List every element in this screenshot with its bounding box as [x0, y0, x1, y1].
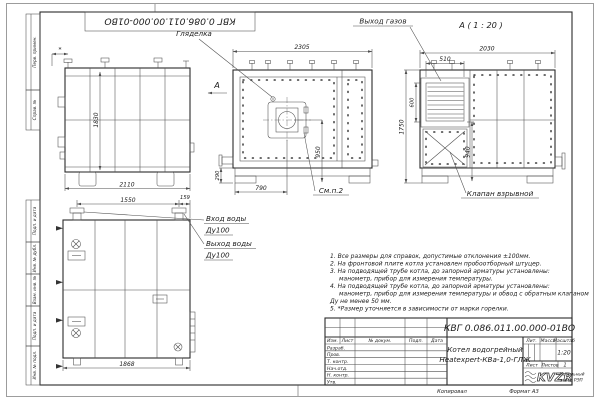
dim-front-width: 2305	[294, 44, 309, 51]
doc-number-main: КВГ 0.086.011.00.000-01ВО	[444, 323, 575, 334]
product-name-1: Котел водогрейный	[447, 345, 523, 354]
margin-stamps: Перв. примен. Справ. № Подп. и дата Инв.…	[26, 14, 40, 385]
stamp-perv-primen: Перв. примен.	[32, 36, 37, 67]
dim-star: *	[59, 47, 62, 54]
front-stubs	[219, 155, 378, 166]
doc-number-top: КВГ 0.086.011.00.000-01ВО	[104, 15, 235, 26]
valve-label: Клапан взрывной	[467, 189, 534, 198]
dim-burner-y: 950	[315, 146, 322, 158]
gas-outlet-label: Выход газов	[359, 17, 406, 26]
sheet-label: Лист	[525, 362, 538, 368]
note-line: 5. *Размер уточняется в зависимости от м…	[330, 306, 509, 313]
section-panel-bolts	[474, 75, 551, 163]
lit-label: Лит.	[525, 338, 537, 344]
kvzr-logo: KVZR Котельный завод РЭП	[525, 371, 585, 384]
title-block: Изм. Лист № докум. Подп. Дата Разраб. Пр…	[325, 318, 585, 386]
sheets-label: Листов	[540, 362, 558, 368]
col-list: Лист	[341, 338, 354, 344]
doc-number-top-box: КВГ 0.086.011.00.000-01ВО	[85, 12, 255, 31]
col-doc: № докум.	[368, 338, 392, 344]
stamp-inv-podl: Инв. № подл.	[32, 351, 37, 380]
logo-subtext-2: завод РЭП	[560, 378, 583, 383]
view-section: А ( 1 : 20 )	[353, 17, 565, 199]
sheets-value: 1	[563, 363, 566, 369]
notes-block: 1. Все размеры для справок, допустимые о…	[329, 253, 589, 313]
dim-bottom-w2: 159	[180, 195, 190, 201]
drawing-sheet: Перв. примен. Справ. № Подп. и дата Инв.…	[0, 0, 600, 400]
copied-label: Копировал	[437, 389, 467, 395]
dim-bottom-w1: 1550	[120, 197, 135, 204]
logo-coil-icon	[525, 372, 536, 383]
product-name-2: Heatexpert-КВа-1,0-ГЛЖ	[439, 355, 531, 364]
note-line: Ду не менее 50 мм.	[329, 298, 392, 305]
see-note-label: См.п.2	[319, 186, 344, 195]
dim-valve-height: 940	[465, 146, 472, 158]
note-line: 2. На фронтовой плите котла установлен п…	[330, 261, 542, 268]
sight-glass-leader	[199, 39, 272, 97]
gas-outlet-leader	[410, 27, 441, 81]
water-in-dn: Ду100	[205, 226, 230, 235]
dim-bottom-total: 1868	[119, 361, 134, 368]
section-arrow-label: А	[213, 80, 220, 90]
row-prov: Пров.	[327, 352, 340, 358]
dim-side-height: 1830	[93, 112, 100, 127]
water-out-dn: Ду100	[205, 251, 230, 260]
row-nachotd: Нач.отд.	[327, 366, 348, 372]
section-view-title: А ( 1 : 20 )	[458, 20, 502, 30]
col-data: Дата	[430, 338, 443, 344]
view-bottom: 1550 159 1868 Вход воды Ду100 Выход воды…	[56, 195, 256, 371]
water-in-label: Вход воды	[206, 214, 246, 223]
note-line: 3. На подводящей трубе котла, до запорно…	[330, 268, 550, 275]
dim-section-height: 1750	[399, 119, 406, 134]
scale-label: Масштаб	[553, 338, 575, 344]
dim-front-base: 290	[215, 170, 221, 181]
sight-glass-dot	[272, 98, 273, 99]
drawing-canvas: Перв. примен. Справ. № Подп. и дата Инв.…	[0, 0, 600, 400]
water-out-leader	[184, 214, 204, 244]
stamp-sprav: Справ. №	[32, 99, 37, 120]
view-front: 2305 А 790 950 290 Гляделка См.п.2	[176, 29, 378, 195]
front-side-panel-bolts	[348, 80, 362, 158]
col-izm: Изм.	[327, 338, 338, 344]
bottom-left-arrows	[56, 226, 63, 369]
format-label: Формат А3	[509, 389, 539, 395]
side-left-stubs	[58, 97, 194, 159]
explosion-valve-panel	[423, 129, 467, 167]
front-base	[235, 168, 370, 183]
bottom-ladder	[190, 312, 195, 352]
note-line: 4. На подводящей трубе котла, до запорно…	[330, 283, 550, 290]
row-tkontr: Т. контр.	[327, 359, 348, 365]
section-base	[422, 168, 553, 183]
stamp-vzam-inv: Взам. инв. №	[32, 275, 37, 304]
scale-value: 1:20	[557, 350, 571, 357]
col-podp: Подп.	[409, 338, 423, 344]
note-line: 1. Все размеры для справок, допустимые о…	[330, 253, 530, 260]
row-razrab: Разраб.	[327, 345, 345, 351]
water-out-label: Выход воды	[206, 239, 252, 248]
sight-glass-label: Гляделка	[176, 29, 212, 38]
view-side: 1830 2110 *	[52, 47, 194, 192]
row-utv: Утв.	[327, 380, 337, 386]
dim-side-width: 2110	[119, 182, 134, 189]
note-line: манометр, прибор для измерения температу…	[339, 291, 589, 298]
logo-subtext-1: Котельный	[560, 372, 585, 377]
dim-grille-height: 600	[410, 97, 416, 108]
section-right-stub	[555, 153, 565, 169]
dim-grille-width: 510	[439, 56, 451, 63]
stamp-podp-data-2: Подп. и дата	[32, 311, 37, 340]
stamp-podp-data-1: Подп. и дата	[32, 206, 37, 235]
stamp-inv-dubl: Инв. № дубл.	[32, 244, 37, 273]
row-nkontr: Н. контр.	[327, 373, 349, 379]
dim-section-width: 2030	[479, 46, 494, 53]
note-line: манометр, прибор для измерения температу…	[339, 276, 493, 283]
water-pipes	[70, 208, 186, 220]
side-top-fittings	[64, 58, 189, 68]
dim-burner-x: 790	[255, 185, 267, 192]
front-top-bolts	[250, 61, 359, 71]
